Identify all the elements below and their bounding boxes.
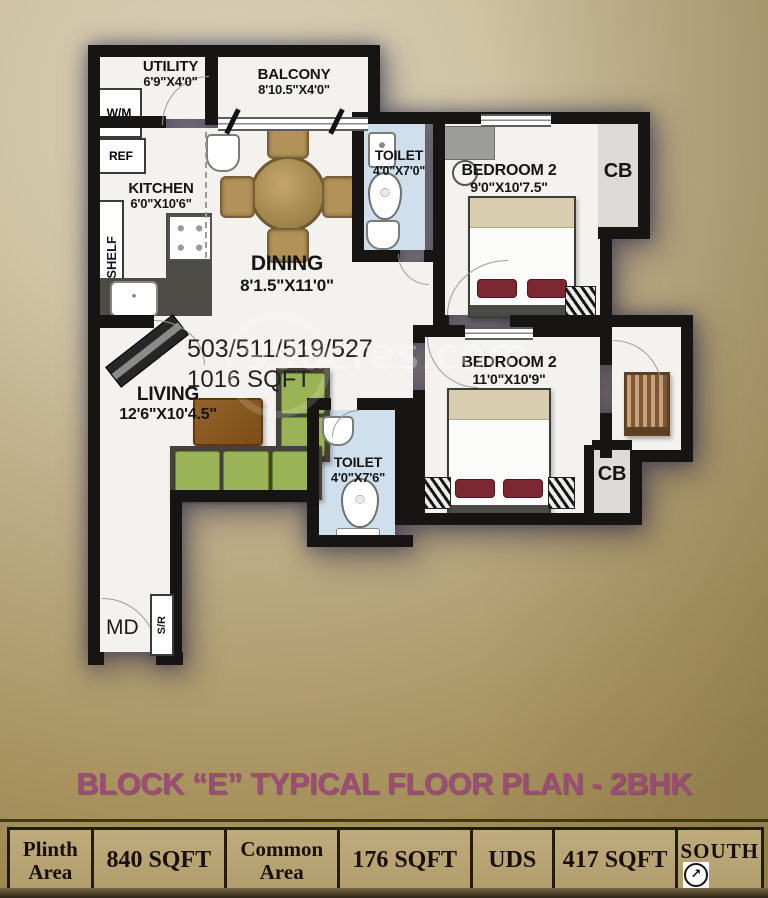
balcony-door-track — [218, 117, 368, 131]
floor-plan: W/M REF SHELF — [0, 0, 768, 898]
wall — [600, 227, 612, 325]
bed-blanket — [470, 198, 574, 228]
wall — [307, 398, 319, 547]
cb-text: CB — [598, 463, 627, 485]
cb-text: CB — [604, 160, 633, 182]
wall — [681, 315, 693, 462]
washing-machine-box: W/M — [96, 88, 142, 138]
table-cell-plinth-value: 840 SQFT — [94, 830, 227, 891]
wall — [600, 327, 612, 365]
room-name: KITCHEN — [110, 180, 212, 197]
table-cell-south: SOUTH ↗ — [678, 830, 761, 891]
balcony-label: BALCONY 8'10.5"X4'0" — [234, 66, 354, 98]
dining-chair-west — [220, 176, 255, 218]
bottom-strip — [0, 888, 768, 898]
wall — [413, 390, 425, 513]
bed-bottom-icon — [447, 388, 551, 518]
wall — [600, 315, 693, 327]
wall — [88, 315, 154, 328]
room-dim: 12'6"X10'4.5" — [98, 406, 238, 424]
shoe-rack-box: S/R — [150, 594, 174, 656]
cupboard-bottom-label: CB — [593, 463, 631, 486]
window — [481, 114, 551, 127]
table-cell-plinth-area: Plinth Area — [10, 830, 94, 891]
dining-table-icon — [250, 156, 326, 232]
table-cell-common-value: 176 SQFT — [340, 830, 473, 891]
wall — [352, 112, 364, 262]
main-door-label: MD — [106, 616, 139, 640]
refrigerator-box: REF — [96, 138, 146, 174]
south-label: SOUTH — [680, 840, 759, 863]
room-name: TOILET — [366, 148, 432, 164]
bed-blanket — [449, 390, 549, 420]
shelf-label: SHELF — [104, 236, 119, 279]
room-name: TOILET — [320, 455, 396, 471]
wall — [592, 440, 632, 450]
room-dim: 9'0"X10'7.5" — [450, 180, 568, 196]
room-name: UTILITY — [113, 58, 228, 75]
pillow-icon — [503, 479, 543, 498]
wall — [395, 398, 413, 525]
table-cell-common-area: Common Area — [227, 830, 340, 891]
pillow-icon — [455, 479, 495, 498]
room-name: BALCONY — [234, 66, 354, 83]
wall — [88, 116, 166, 128]
rug-icon — [565, 286, 596, 317]
toilet-bottom-label: TOILET 4'0"X7'6" — [320, 455, 396, 486]
dining-label: DINING 8'1.5"X11'0" — [226, 252, 348, 295]
kitchen-sink-icon — [110, 281, 158, 317]
rug-icon — [424, 477, 451, 509]
table-cell-uds: UDS — [473, 830, 555, 891]
wall — [638, 112, 650, 239]
pillow-icon — [527, 279, 567, 298]
cushion — [175, 451, 220, 495]
shoe-rack-label: S/R — [156, 616, 168, 634]
wall — [433, 112, 445, 327]
rug-icon — [548, 477, 575, 509]
table-cell-uds-value: 417 SQFT — [555, 830, 679, 891]
wall — [307, 535, 413, 547]
dining-washbasin-icon — [206, 134, 240, 172]
desk-icon — [437, 126, 495, 160]
toilet-top-label: TOILET 4'0"X7'0" — [366, 148, 432, 178]
wall — [88, 45, 380, 57]
compass-arrow: ↗ — [684, 863, 708, 887]
kitchen-label: KITCHEN 6'0"X10'6" — [110, 180, 212, 212]
room-dim: 4'0"X7'0" — [366, 164, 432, 178]
cupboard-top-label: CB — [599, 160, 637, 183]
room-dim: 8'10.5"X4'0" — [234, 83, 354, 98]
wall — [352, 250, 400, 262]
room-name: BEDROOM 2 — [450, 162, 568, 180]
wall — [413, 513, 642, 525]
refrigerator-label: REF — [109, 149, 133, 163]
utility-label: UTILITY 6'9"X4'0" — [113, 58, 228, 90]
room-dim: 6'0"X10'6" — [110, 197, 212, 212]
floor-plan-page: W/M REF SHELF — [0, 0, 768, 898]
toilet-top-basin-icon — [366, 220, 400, 250]
wall — [170, 490, 315, 502]
cushion — [223, 451, 268, 495]
compass-icon: ↗ — [683, 862, 709, 888]
divider-line — [0, 819, 768, 822]
room-name: DINING — [226, 252, 348, 276]
wall — [600, 413, 612, 458]
room-dim: 6'9"X4'0" — [113, 75, 228, 90]
room-dim: 4'0"X7'6" — [320, 471, 396, 486]
wall — [88, 652, 104, 665]
page-title: BLOCK “E” TYPICAL FLOOR PLAN - 2BHK — [0, 766, 768, 802]
watermark-text: 99acres.com — [243, 330, 530, 380]
area-table: Plinth Area 840 SQFT Common Area 176 SQF… — [7, 827, 764, 894]
room-dim: 8'1.5"X11'0" — [226, 276, 348, 295]
bedroom-top-label: BEDROOM 2 9'0"X10'7.5" — [450, 162, 568, 196]
wall — [88, 45, 100, 665]
bed-sheet — [449, 420, 549, 505]
